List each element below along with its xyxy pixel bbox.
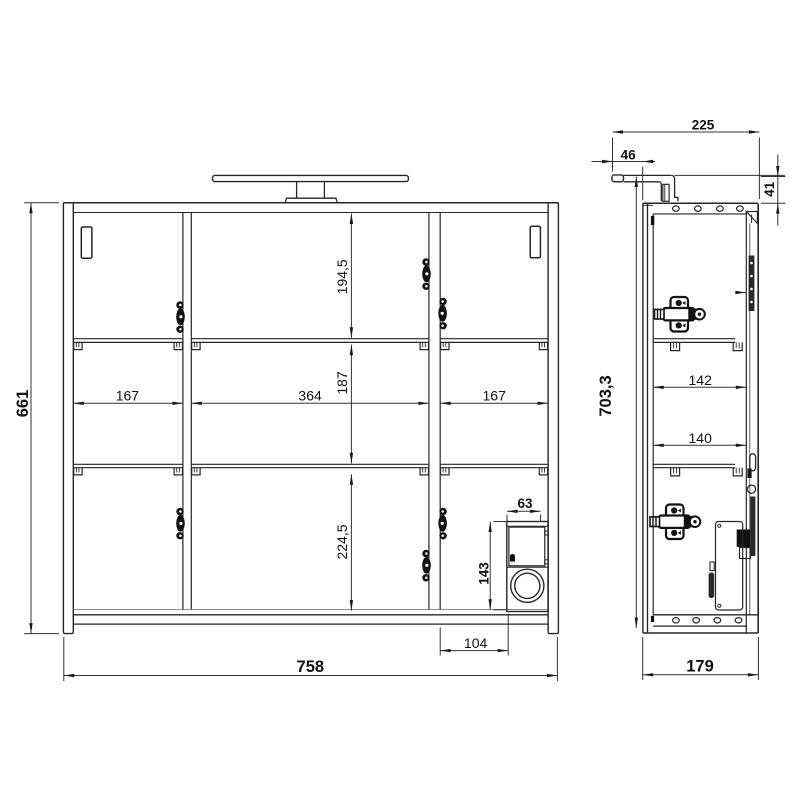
svg-text:224,5: 224,5 <box>334 524 350 559</box>
svg-text:364: 364 <box>298 388 322 404</box>
svg-text:46: 46 <box>621 147 637 162</box>
svg-text:179: 179 <box>686 658 714 676</box>
svg-text:167: 167 <box>116 388 140 404</box>
svg-text:140: 140 <box>689 430 713 446</box>
svg-text:167: 167 <box>483 388 507 404</box>
svg-text:104: 104 <box>464 635 488 651</box>
svg-text:703,3: 703,3 <box>597 375 615 416</box>
svg-text:143: 143 <box>477 562 492 585</box>
svg-text:661: 661 <box>14 390 32 418</box>
svg-text:63: 63 <box>517 496 533 511</box>
svg-text:194,5: 194,5 <box>334 259 350 294</box>
svg-text:758: 758 <box>297 658 325 676</box>
svg-text:41: 41 <box>762 181 777 197</box>
svg-text:187: 187 <box>334 371 350 395</box>
svg-text:142: 142 <box>689 372 713 388</box>
svg-text:225: 225 <box>692 117 715 132</box>
